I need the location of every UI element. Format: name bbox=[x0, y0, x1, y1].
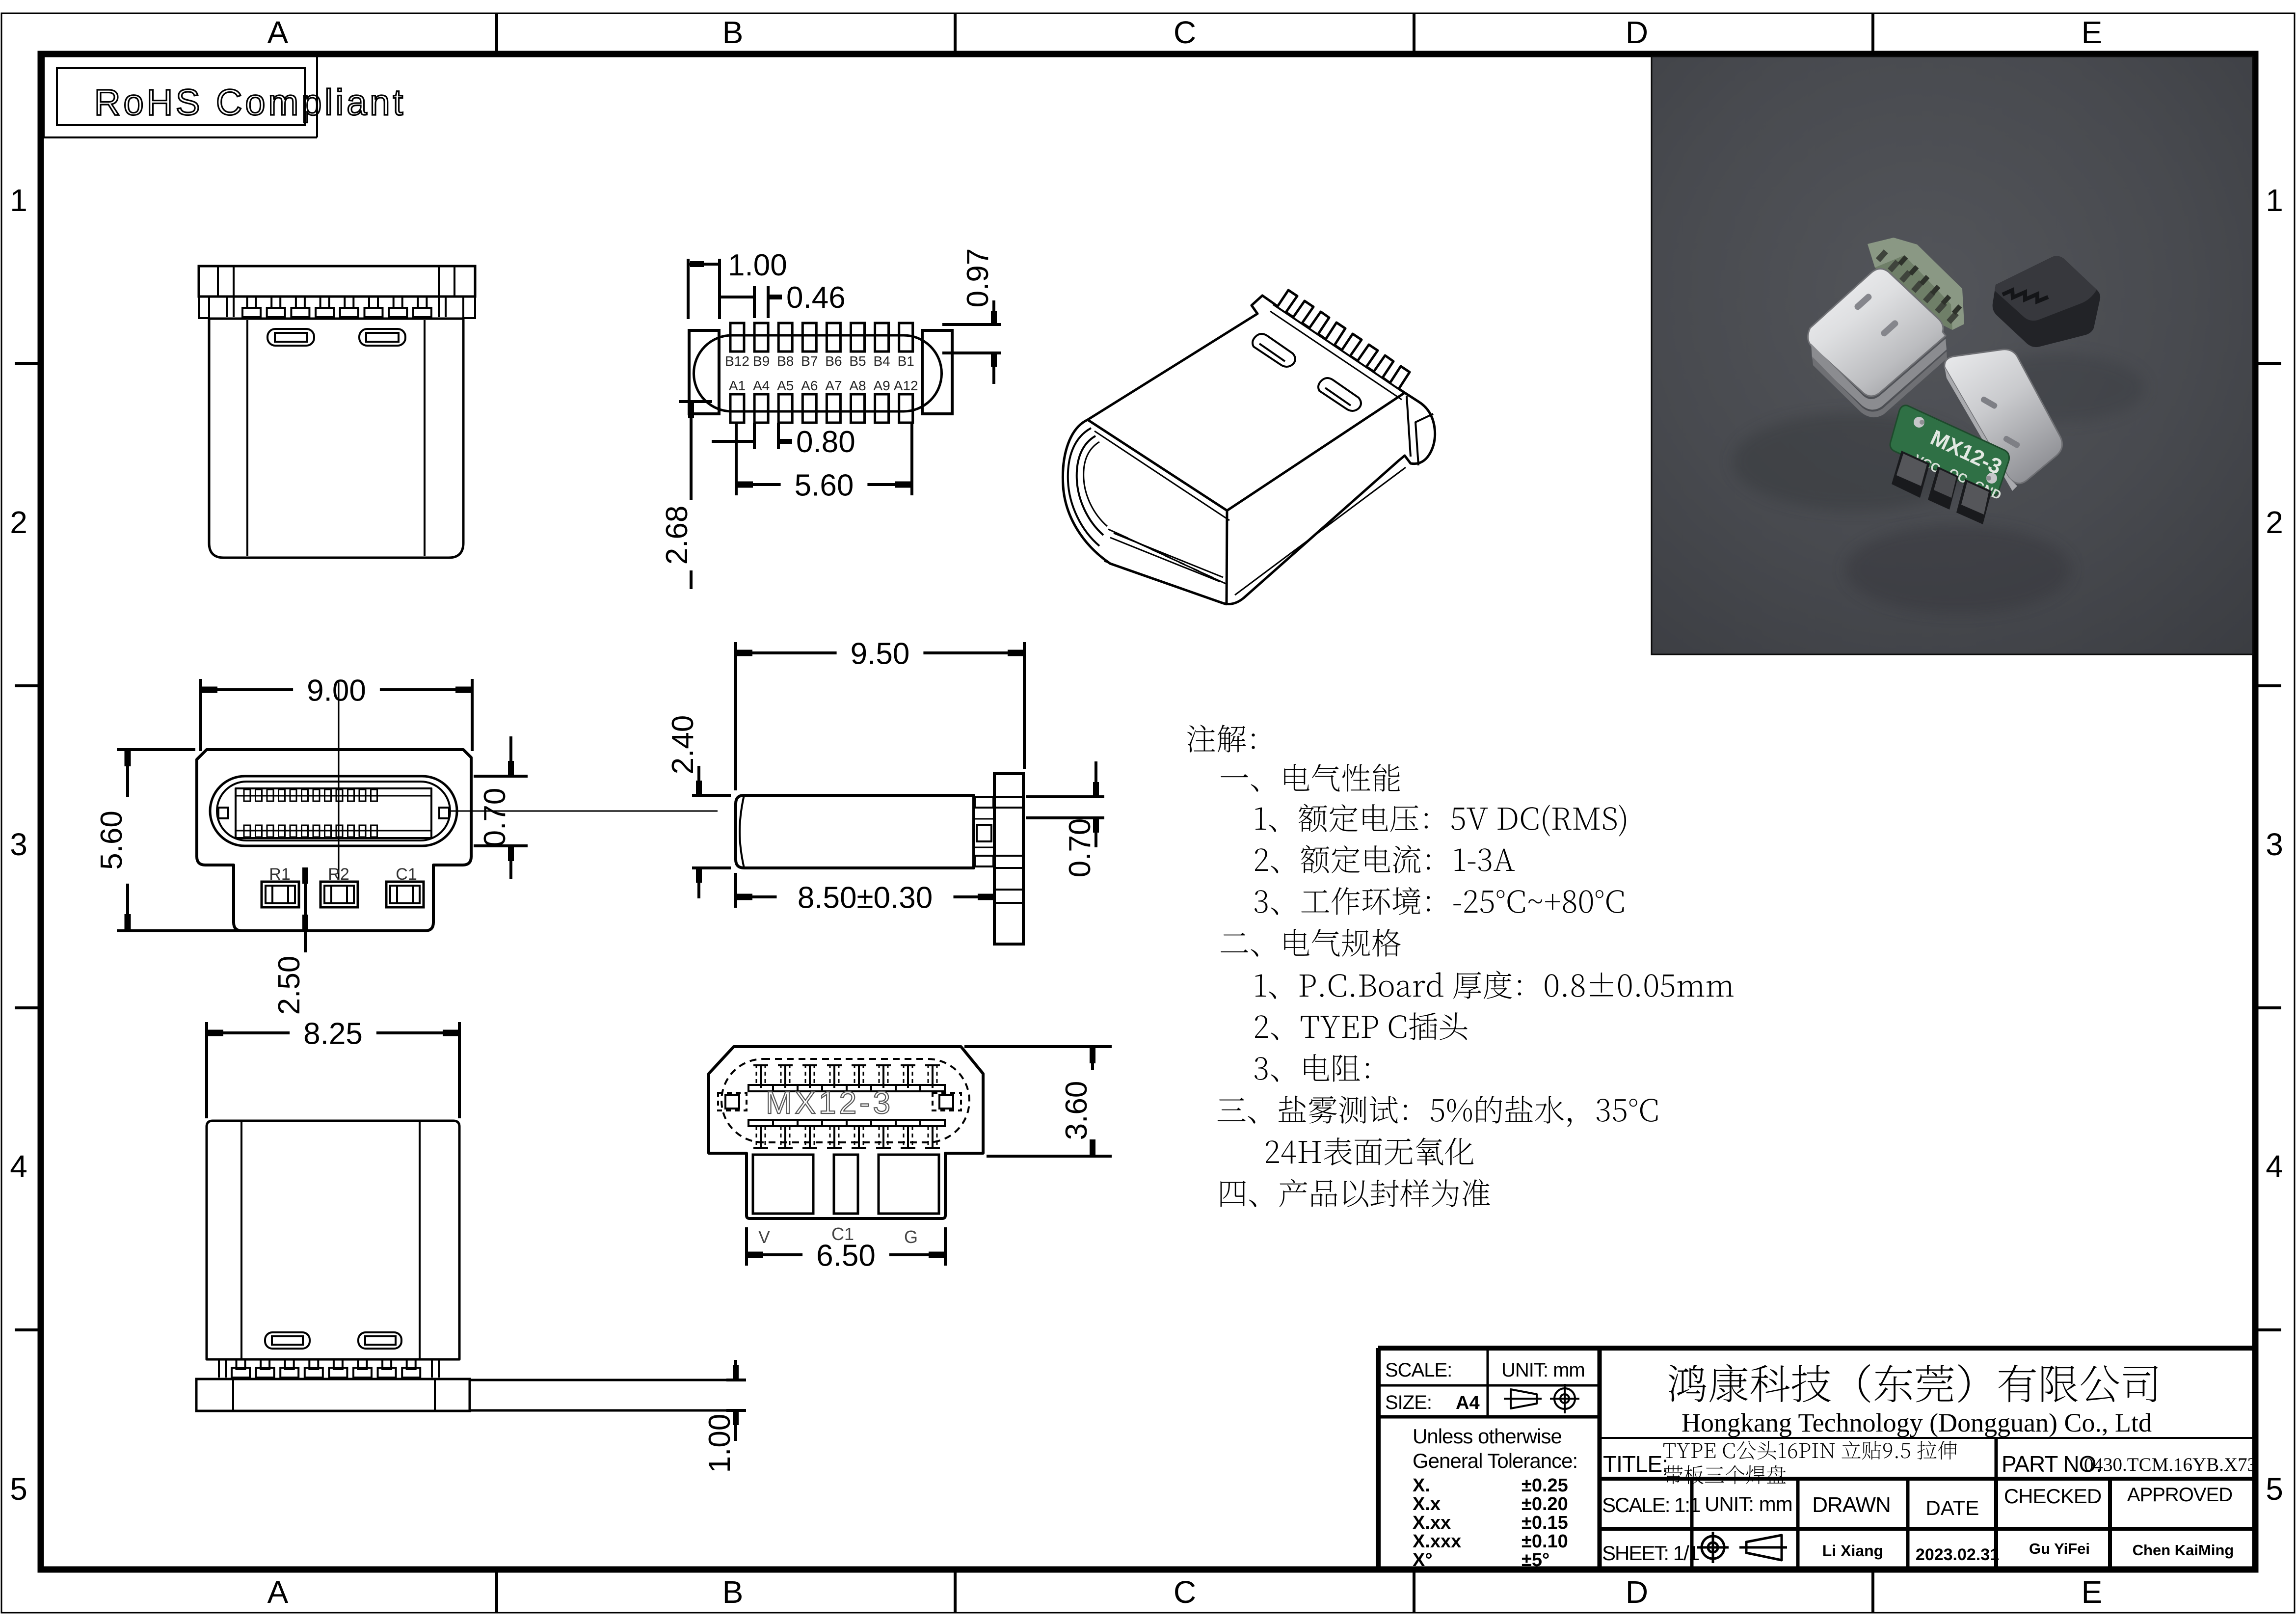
svg-text:0.70: 0.70 bbox=[478, 788, 512, 847]
svg-text:SCALE:: SCALE: bbox=[1385, 1359, 1452, 1381]
svg-text:TITLE:: TITLE: bbox=[1603, 1451, 1668, 1477]
svg-text:A12: A12 bbox=[894, 378, 918, 393]
svg-text:Unless otherwise: Unless otherwise bbox=[1413, 1425, 1562, 1448]
svg-text:1: 1 bbox=[2266, 183, 2283, 218]
svg-text:1.00: 1.00 bbox=[703, 1414, 737, 1473]
svg-text:4: 4 bbox=[2266, 1149, 2283, 1184]
svg-text:5.60: 5.60 bbox=[95, 811, 129, 870]
svg-text:Gu YiFei: Gu YiFei bbox=[2029, 1540, 2090, 1557]
svg-text:DATE: DATE bbox=[1926, 1496, 1979, 1519]
svg-text:B6: B6 bbox=[825, 353, 842, 369]
svg-text:9.50: 9.50 bbox=[851, 637, 910, 671]
svg-text:8.50±0.30: 8.50±0.30 bbox=[798, 881, 933, 915]
svg-text:A1: A1 bbox=[729, 378, 746, 393]
svg-text:0.80: 0.80 bbox=[796, 425, 855, 459]
svg-text:A7: A7 bbox=[825, 378, 842, 393]
svg-text:2: 2 bbox=[2266, 505, 2283, 540]
svg-text:A5: A5 bbox=[777, 378, 794, 393]
svg-text:A: A bbox=[267, 15, 289, 50]
svg-text:X°: X° bbox=[1413, 1550, 1433, 1570]
svg-text:4: 4 bbox=[10, 1149, 27, 1184]
svg-text:B4: B4 bbox=[873, 353, 890, 369]
svg-text:MX12-3: MX12-3 bbox=[766, 1085, 893, 1120]
svg-text:A6: A6 bbox=[801, 378, 818, 393]
svg-text:G: G bbox=[904, 1227, 918, 1247]
svg-text:B: B bbox=[722, 1574, 744, 1610]
svg-text:0.97: 0.97 bbox=[961, 248, 995, 308]
svg-text:X.xxx: X.xxx bbox=[1413, 1531, 1461, 1552]
svg-text:B9: B9 bbox=[753, 353, 770, 369]
svg-text:B8: B8 bbox=[777, 353, 794, 369]
svg-text:±5°: ±5° bbox=[1522, 1550, 1549, 1570]
svg-text:SCALE: 1:1: SCALE: 1:1 bbox=[1602, 1493, 1700, 1516]
svg-text:SHEET: 1/1: SHEET: 1/1 bbox=[1602, 1542, 1699, 1565]
svg-text:UNIT: mm: UNIT: mm bbox=[1501, 1359, 1585, 1381]
svg-text:2.50: 2.50 bbox=[272, 956, 306, 1015]
svg-text:±0.10: ±0.10 bbox=[1522, 1531, 1568, 1552]
svg-text:X.x: X.x bbox=[1413, 1494, 1441, 1515]
svg-text:A: A bbox=[267, 1574, 289, 1610]
svg-text:DRAWN: DRAWN bbox=[1812, 1493, 1891, 1517]
svg-text:5: 5 bbox=[2266, 1471, 2283, 1507]
svg-text:B5: B5 bbox=[849, 353, 866, 369]
svg-text:0430.TCM.16YB.X73: 0430.TCM.16YB.X73 bbox=[2084, 1454, 2257, 1475]
svg-text:CHECKED: CHECKED bbox=[2004, 1485, 2101, 1508]
svg-text:D: D bbox=[1626, 15, 1648, 50]
svg-text:RoHS Compliant: RoHS Compliant bbox=[94, 82, 406, 123]
svg-text:E: E bbox=[2082, 1574, 2103, 1610]
svg-text:APPROVED: APPROVED bbox=[2127, 1484, 2232, 1506]
svg-text:6.50: 6.50 bbox=[816, 1239, 876, 1272]
svg-text:C: C bbox=[1174, 15, 1196, 50]
svg-text:±0.15: ±0.15 bbox=[1522, 1513, 1568, 1533]
svg-text:A4: A4 bbox=[1456, 1393, 1480, 1413]
svg-text:B12: B12 bbox=[725, 353, 749, 369]
svg-text:A8: A8 bbox=[849, 378, 866, 393]
svg-text:3: 3 bbox=[10, 827, 27, 862]
svg-text:1.00: 1.00 bbox=[728, 248, 787, 282]
svg-text:0.46: 0.46 bbox=[786, 281, 846, 315]
svg-text:B: B bbox=[722, 15, 744, 50]
svg-text:2.40: 2.40 bbox=[666, 715, 700, 775]
svg-text:A4: A4 bbox=[753, 378, 770, 393]
svg-text:B1: B1 bbox=[898, 353, 914, 369]
svg-text:B7: B7 bbox=[801, 353, 818, 369]
svg-text:X.xx: X.xx bbox=[1413, 1513, 1451, 1533]
svg-text:General Tolerance:: General Tolerance: bbox=[1413, 1449, 1577, 1472]
svg-text:5: 5 bbox=[10, 1471, 27, 1507]
svg-text:8.25: 8.25 bbox=[303, 1017, 363, 1051]
svg-text:0.70: 0.70 bbox=[1063, 818, 1097, 878]
svg-text:A9: A9 bbox=[873, 378, 890, 393]
svg-text:E: E bbox=[2082, 15, 2103, 50]
svg-text:V: V bbox=[758, 1227, 770, 1247]
svg-text:3: 3 bbox=[2266, 827, 2283, 862]
svg-text:1: 1 bbox=[10, 183, 27, 218]
svg-text:SIZE:: SIZE: bbox=[1385, 1392, 1432, 1413]
svg-text:±0.25: ±0.25 bbox=[1522, 1475, 1568, 1496]
svg-text:Li Xiang: Li Xiang bbox=[1822, 1542, 1883, 1560]
svg-text:C: C bbox=[1174, 1574, 1196, 1610]
svg-text:5.60: 5.60 bbox=[795, 468, 854, 502]
svg-text:D: D bbox=[1626, 1574, 1648, 1610]
svg-text:Chen KaiMing: Chen KaiMing bbox=[2133, 1542, 2234, 1559]
svg-text:2.68: 2.68 bbox=[660, 506, 694, 565]
svg-text:3.60: 3.60 bbox=[1060, 1081, 1094, 1140]
svg-text:UNIT: mm: UNIT: mm bbox=[1705, 1492, 1792, 1515]
svg-text:2023.02.31: 2023.02.31 bbox=[1916, 1545, 1999, 1564]
svg-text:±0.20: ±0.20 bbox=[1522, 1494, 1568, 1515]
svg-text:2: 2 bbox=[10, 505, 27, 540]
svg-text:X.: X. bbox=[1413, 1475, 1430, 1496]
svg-text:Hongkang Technology (Dongguan): Hongkang Technology (Dongguan) Co., Ltd bbox=[1682, 1408, 2152, 1437]
svg-text:9.00: 9.00 bbox=[307, 674, 366, 707]
